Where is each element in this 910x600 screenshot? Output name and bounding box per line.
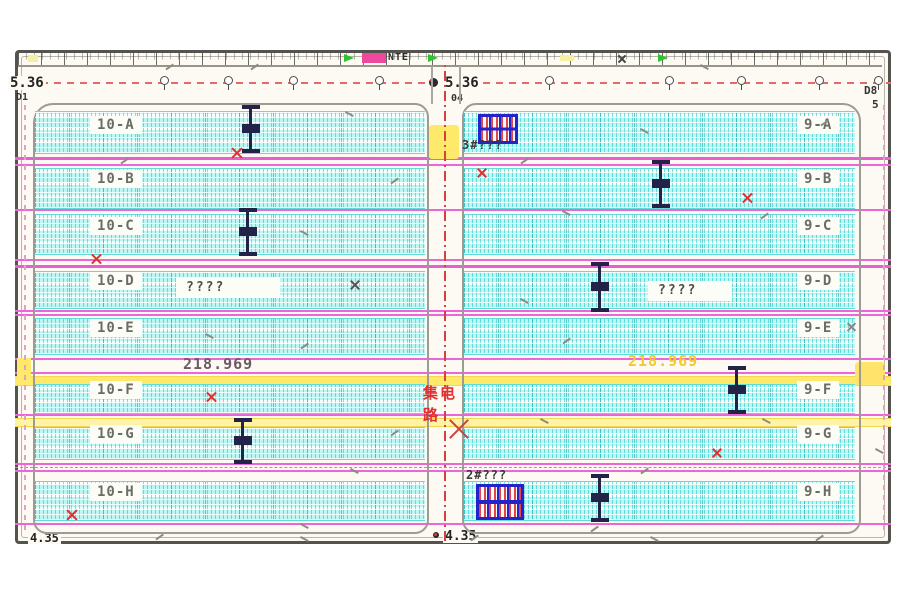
tower-symbol bbox=[652, 160, 670, 208]
chainage-right: 218.969 bbox=[628, 352, 698, 370]
x-mark bbox=[617, 53, 627, 63]
x-mark bbox=[230, 145, 244, 159]
x-mark bbox=[711, 446, 723, 458]
benchmark-icon bbox=[433, 532, 439, 538]
x-mark bbox=[349, 278, 361, 290]
chainage-left: 218.969 bbox=[183, 355, 253, 373]
station-box-bottom bbox=[476, 484, 524, 520]
x-mark bbox=[476, 166, 488, 178]
row-label: 9-E bbox=[797, 319, 839, 337]
x-mark bbox=[65, 507, 79, 521]
green-arrow-icon bbox=[344, 54, 354, 62]
x-mark bbox=[205, 389, 218, 402]
road-label: 路 bbox=[423, 408, 440, 423]
code-top-right-2: 5 bbox=[872, 99, 879, 110]
code-top-center: 04 bbox=[451, 94, 463, 104]
tower-symbol bbox=[242, 105, 260, 153]
code-top-left: D1 bbox=[16, 93, 28, 103]
road-label: 集电 bbox=[423, 386, 457, 401]
row-label: 9-A bbox=[797, 116, 839, 134]
x-mark bbox=[846, 320, 857, 331]
row-label: 9-G bbox=[797, 425, 839, 443]
road-edge bbox=[459, 66, 461, 104]
row-label: 9-D bbox=[797, 272, 839, 290]
row-label: 10-B bbox=[90, 170, 142, 188]
survey-point-icon bbox=[545, 76, 554, 85]
tower-symbol bbox=[591, 474, 609, 522]
survey-point-icon bbox=[160, 76, 169, 85]
row-label: 10-D bbox=[90, 272, 142, 290]
tower-symbol bbox=[728, 366, 746, 414]
station-label-top: 3#??? bbox=[462, 138, 503, 152]
green-arrow-icon bbox=[428, 54, 438, 62]
green-arrow-icon bbox=[658, 54, 668, 62]
row-label: 9-C bbox=[797, 217, 839, 235]
tower-symbol bbox=[234, 418, 252, 464]
survey-point-icon bbox=[737, 76, 746, 85]
top-ruler bbox=[18, 53, 882, 67]
survey-point-icon bbox=[874, 76, 883, 85]
station-label-bottom: 2#??? bbox=[466, 468, 507, 482]
survey-point-icon bbox=[289, 76, 298, 85]
boundary-dashed-line bbox=[24, 105, 26, 530]
magenta-marker bbox=[362, 53, 386, 63]
x-mark bbox=[741, 190, 754, 203]
row-label: 9-H bbox=[797, 483, 839, 501]
row-label: 10-A bbox=[90, 116, 142, 134]
row-label: 10-C bbox=[90, 217, 142, 235]
elevation-top-center: 5.36 bbox=[443, 76, 481, 90]
row-label: 9-F bbox=[797, 381, 839, 399]
code-top-right: D8 bbox=[864, 85, 877, 96]
road-centerline bbox=[444, 64, 446, 541]
survey-point-icon bbox=[815, 76, 824, 85]
row-label: 10-F bbox=[90, 381, 142, 399]
tower-symbol bbox=[591, 262, 609, 312]
row-label: 10-G bbox=[90, 425, 142, 443]
survey-point-icon bbox=[665, 76, 674, 85]
survey-point-icon bbox=[375, 76, 384, 85]
yellow-marker bbox=[560, 55, 574, 61]
boundary-dashed-line bbox=[883, 105, 885, 530]
row-note: ???? bbox=[648, 281, 732, 301]
ruler-tag: NTE bbox=[388, 52, 409, 63]
elevation-top-left: 5.36 bbox=[8, 76, 46, 90]
row-label: 10-H bbox=[90, 483, 142, 501]
road-edge bbox=[431, 66, 433, 104]
yellow-marker bbox=[28, 55, 38, 62]
row-note: ???? bbox=[176, 278, 280, 298]
x-mark bbox=[90, 251, 103, 264]
tower-symbol bbox=[239, 208, 257, 256]
x-mark bbox=[446, 415, 472, 441]
cad-site-plan: NTE 5.36 D1 5.36 04 D8 5 4.35 4.35 bbox=[0, 0, 910, 600]
row-label: 9-B bbox=[797, 170, 839, 188]
survey-point-icon bbox=[224, 76, 233, 85]
row-label: 10-E bbox=[90, 319, 142, 337]
